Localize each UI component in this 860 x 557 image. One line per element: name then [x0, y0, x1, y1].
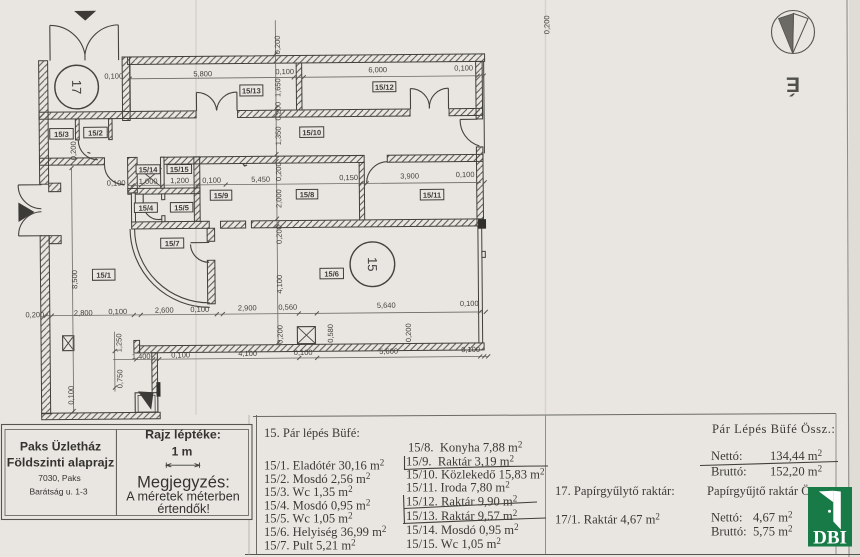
svg-text:15/5. Wc 1,05 m2: 15/5. Wc 1,05 m2 — [264, 511, 353, 526]
svg-text:15/6. Helyiség 36,99 m2: 15/6. Helyiség 36,99 m2 — [264, 524, 386, 539]
svg-text:15/8: 15/8 — [300, 190, 315, 199]
svg-text:1,350: 1,350 — [274, 126, 283, 145]
svg-text:15/7. Pult 5,21 m2: 15/7. Pult 5,21 m2 — [264, 537, 356, 552]
svg-text:Rajz léptéke:: Rajz léptéke: — [145, 428, 221, 442]
svg-text:15/2: 15/2 — [88, 129, 103, 138]
svg-text:7030, Paks: 7030, Paks — [38, 473, 81, 483]
svg-text:8,500: 8,500 — [70, 270, 79, 289]
svg-text:0,100: 0,100 — [460, 299, 479, 308]
svg-text:15/9: 15/9 — [214, 191, 229, 200]
svg-text:1,200: 1,200 — [170, 176, 189, 185]
svg-text:0,200: 0,200 — [275, 225, 284, 244]
svg-text:15/12. Raktár 9,90 m2: 15/12. Raktár 9,90 m2 — [406, 494, 517, 509]
svg-text:1,000: 1,000 — [139, 177, 158, 186]
svg-text:134,44 m2: 134,44 m2 — [770, 448, 822, 463]
svg-text:152,20 m2: 152,20 m2 — [770, 464, 822, 479]
svg-text:0,100: 0,100 — [108, 307, 127, 316]
svg-text:2,800: 2,800 — [74, 308, 93, 317]
svg-text:0,560: 0,560 — [278, 303, 297, 312]
svg-text:2,000: 2,000 — [274, 189, 283, 208]
svg-text:Paks Üzletház: Paks Üzletház — [20, 439, 101, 454]
svg-text:6,000: 6,000 — [368, 65, 387, 74]
svg-text:0,100: 0,100 — [294, 348, 313, 357]
svg-text:15/4: 15/4 — [139, 204, 155, 213]
svg-text:0,200: 0,200 — [273, 36, 282, 55]
svg-text:DBI: DBI — [813, 528, 847, 549]
svg-text:15/2. Mosdó 2,56 m2: 15/2. Mosdó 2,56 m2 — [264, 471, 370, 486]
svg-text:2,600: 2,600 — [155, 306, 174, 315]
svg-text:15/15. Wc 1,05 m2: 15/15. Wc 1,05 m2 — [406, 536, 501, 551]
svg-text:Nettó:: Nettó: — [711, 449, 742, 463]
svg-text:17. Papírgyűlytő raktár:: 17. Papírgyűlytő raktár: — [555, 484, 675, 498]
svg-text:0,200: 0,200 — [274, 162, 283, 181]
svg-text:4,67 m2: 4,67 m2 — [753, 510, 792, 525]
svg-text:Pár Lépés Büfé Össz.:: Pár Lépés Büfé Össz.: — [712, 422, 835, 436]
svg-text:0,580: 0,580 — [326, 324, 335, 343]
svg-text:15/12: 15/12 — [375, 83, 394, 92]
svg-text:0,100: 0,100 — [107, 179, 126, 188]
svg-text:15/6: 15/6 — [324, 269, 339, 278]
svg-text:15/1: 15/1 — [96, 271, 111, 280]
svg-text:0,200: 0,200 — [69, 141, 78, 160]
svg-text:0,100: 0,100 — [66, 386, 75, 405]
svg-text:0,100: 0,100 — [461, 345, 480, 354]
svg-text:15. Pár lépés Büfé:: 15. Pár lépés Büfé: — [264, 426, 360, 440]
svg-text:15/11: 15/11 — [423, 191, 441, 200]
svg-text:3,900: 3,900 — [400, 171, 419, 180]
svg-text:15/11. Iroda 7,80 m2: 15/11. Iroda 7,80 m2 — [406, 480, 510, 495]
svg-text:0,100: 0,100 — [171, 350, 190, 359]
svg-text:0,200: 0,200 — [275, 325, 284, 344]
svg-text:1,250: 1,250 — [114, 333, 123, 352]
svg-text:15/10: 15/10 — [302, 128, 321, 137]
svg-text:15/5: 15/5 — [174, 203, 189, 212]
svg-text:0,200: 0,200 — [404, 323, 413, 342]
svg-text:15/3: 15/3 — [54, 130, 69, 139]
svg-text:0,100: 0,100 — [454, 63, 473, 72]
svg-text:5,450: 5,450 — [251, 175, 270, 184]
svg-text:0,150: 0,150 — [339, 173, 358, 182]
svg-text:15/4. Mosdó 0,95 m2: 15/4. Mosdó 0,95 m2 — [264, 497, 370, 512]
svg-text:0,100: 0,100 — [104, 72, 123, 81]
svg-text:1,650: 1,650 — [273, 78, 282, 97]
svg-text:1 m: 1 m — [172, 444, 193, 458]
svg-text:0,100: 0,100 — [190, 305, 209, 314]
svg-text:2,900: 2,900 — [238, 303, 257, 312]
svg-text:0,200: 0,200 — [273, 102, 282, 121]
svg-text:0,100: 0,100 — [456, 170, 475, 179]
svg-text:15/13: 15/13 — [242, 86, 261, 95]
svg-text:Bruttó:: Bruttó: — [711, 465, 747, 479]
svg-text:15/15: 15/15 — [170, 165, 189, 174]
svg-text:Földszinti alaprajz: Földszinti alaprajz — [7, 456, 114, 470]
svg-text:17/1. Raktár 4,67 m2: 17/1. Raktár 4,67 m2 — [555, 512, 660, 527]
svg-text:Barátság u. 1-3: Barátság u. 1-3 — [29, 487, 87, 497]
svg-text:5,800: 5,800 — [193, 69, 212, 78]
svg-text:Bruttó:: Bruttó: — [711, 525, 747, 539]
svg-text:15/14: 15/14 — [139, 165, 159, 174]
svg-text:É: É — [786, 73, 800, 96]
svg-text:5,75 m2: 5,75 m2 — [753, 524, 792, 539]
svg-text:4,100: 4,100 — [238, 349, 257, 358]
svg-text:4,100: 4,100 — [275, 275, 284, 294]
svg-text:értendők!: értendők! — [157, 502, 210, 516]
svg-text:17: 17 — [69, 80, 84, 95]
svg-text:15/8. Konyha 7,88 m2: 15/8. Konyha 7,88 m2 — [408, 440, 522, 455]
svg-text:15: 15 — [365, 257, 380, 272]
svg-text:5,640: 5,640 — [377, 301, 396, 310]
svg-text:5,600: 5,600 — [379, 347, 398, 356]
svg-text:0,100: 0,100 — [202, 176, 221, 185]
svg-text:0,200: 0,200 — [25, 310, 44, 319]
svg-text:15/7: 15/7 — [165, 239, 180, 248]
svg-text:15/3. Wc 1,35 m2: 15/3. Wc 1,35 m2 — [264, 484, 353, 499]
svg-text:1,400: 1,400 — [132, 352, 151, 361]
svg-text:15/14. Mosdó 0,95 m2: 15/14. Mosdó 0,95 m2 — [406, 522, 519, 537]
svg-text:0,200: 0,200 — [542, 15, 551, 34]
svg-text:0,750: 0,750 — [115, 369, 124, 388]
svg-text:Nettó:: Nettó: — [711, 511, 742, 525]
svg-text:0,100: 0,100 — [275, 67, 294, 76]
